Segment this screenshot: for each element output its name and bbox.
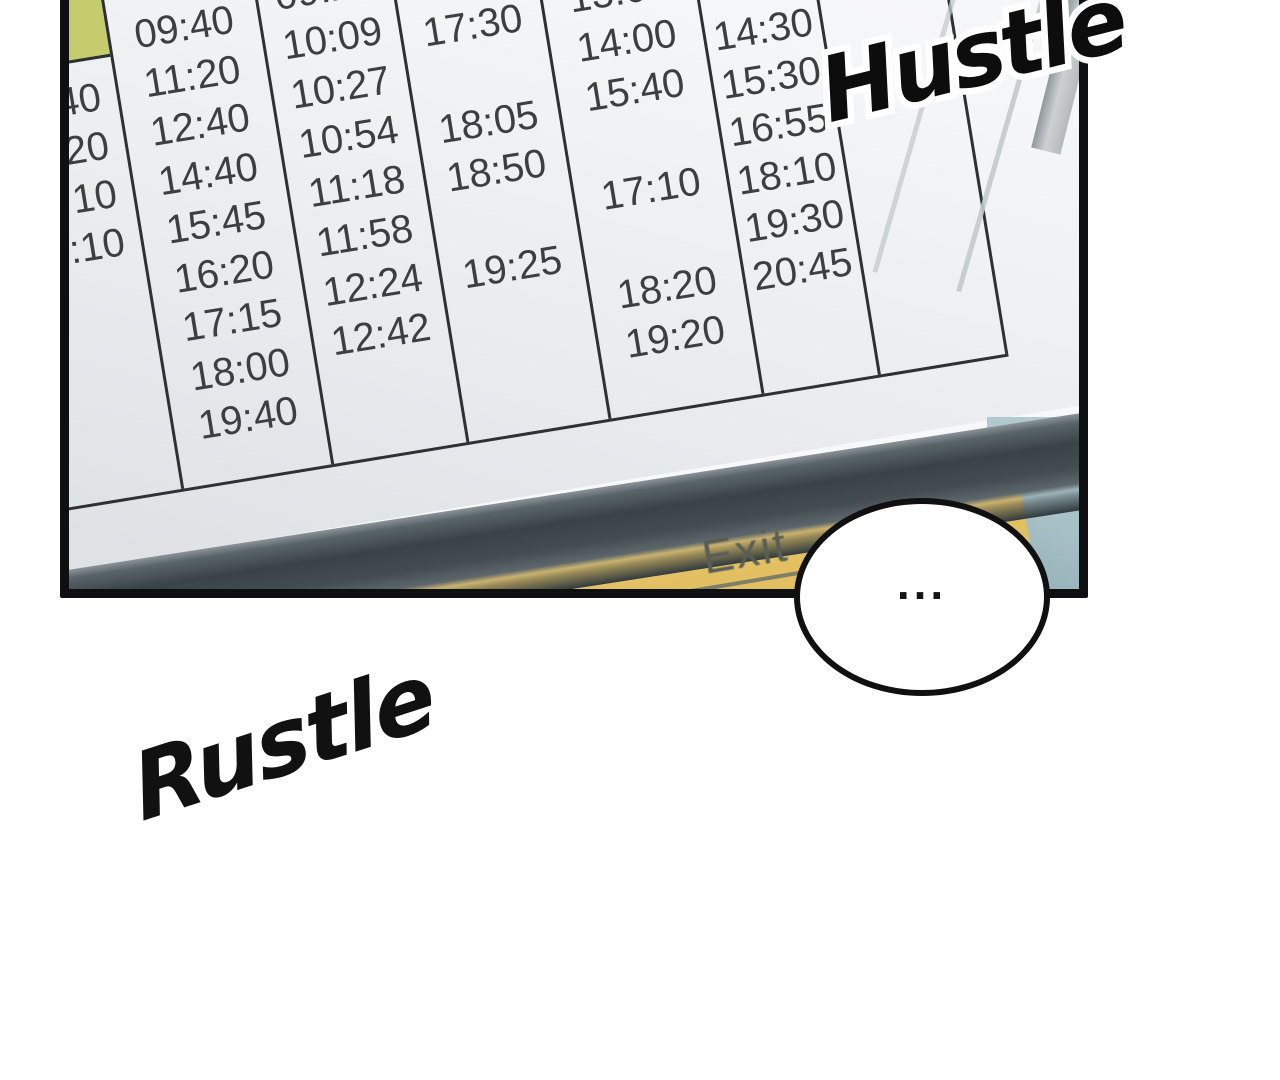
time-cell: 17:30 (399, 0, 546, 62)
time-cell: 17:10 (572, 152, 730, 226)
time-cell: :10 (60, 215, 144, 288)
speech-bubble: ... (794, 498, 1050, 696)
ellipsis-text: ... (897, 556, 947, 610)
sfx-hustle-top-text: Hustle (810, 0, 1136, 144)
sfx-hustle-top: Hustle (810, 0, 1150, 225)
time-cell: 19:25 (439, 231, 586, 303)
sfx-rustle-bottom: Rustle (115, 638, 464, 907)
